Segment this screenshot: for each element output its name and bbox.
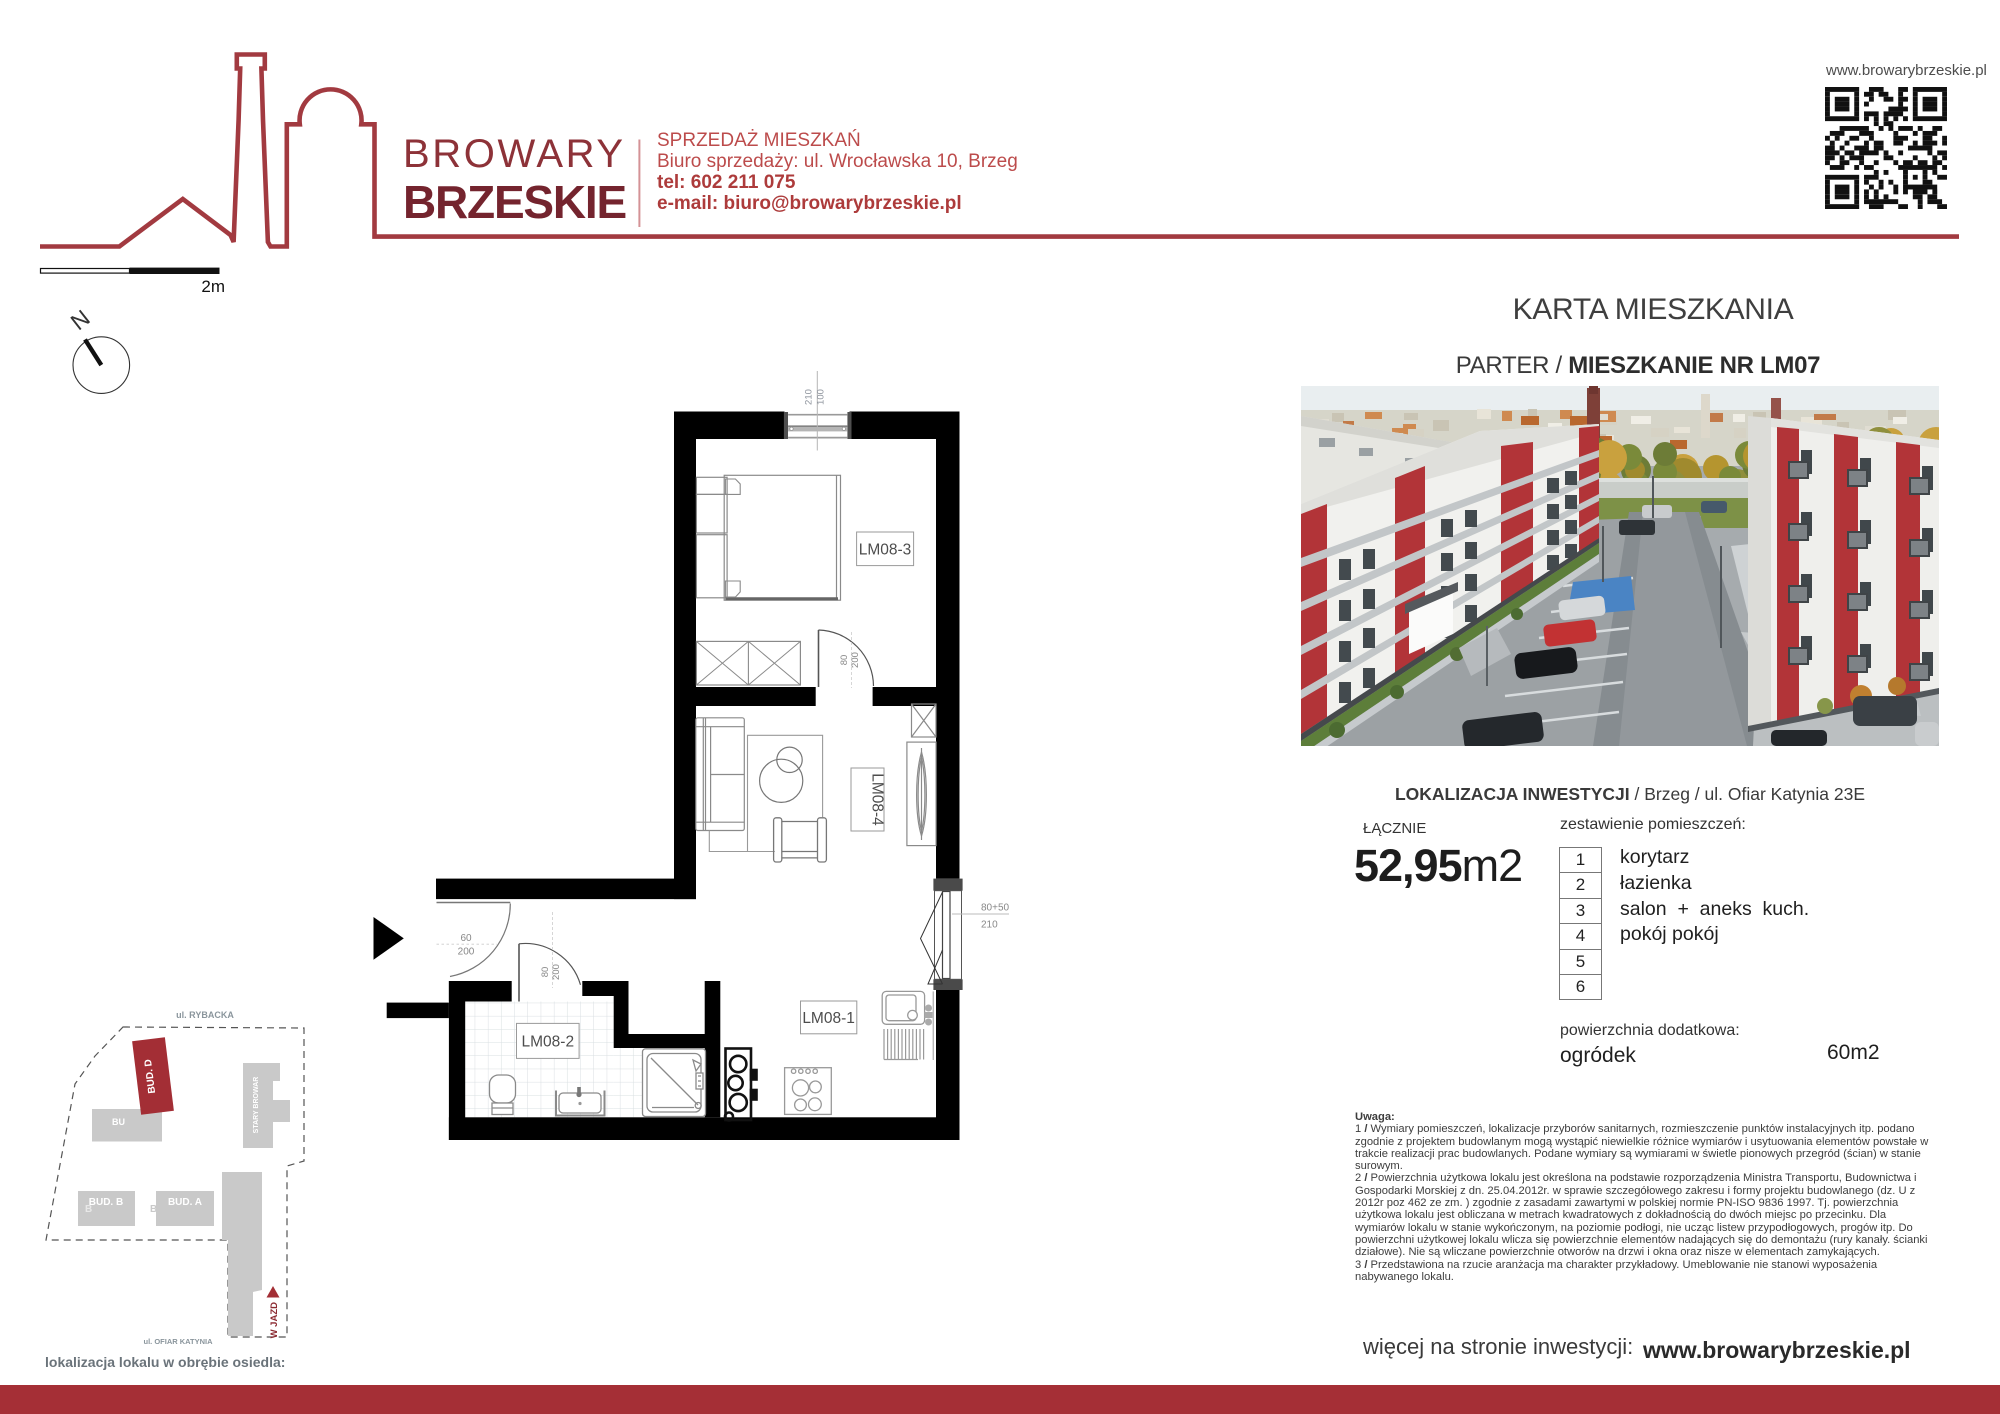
svg-text:BU: BU — [112, 1117, 125, 1127]
svg-text:80: 80 — [839, 655, 850, 666]
svg-text:BUD. B: BUD. B — [89, 1197, 123, 1208]
svg-text:200: 200 — [551, 964, 562, 980]
svg-text:B A: B A — [150, 1204, 167, 1215]
svg-text:200: 200 — [850, 652, 861, 668]
svg-text:210: 210 — [981, 920, 998, 931]
svg-text:W JAZD: W JAZD — [269, 1302, 280, 1339]
svg-text:LM08-4: LM08-4 — [869, 773, 886, 826]
svg-text:B: B — [85, 1204, 92, 1215]
svg-text:60: 60 — [460, 933, 472, 944]
svg-text:ul. OFIAR KATYNIA: ul. OFIAR KATYNIA — [143, 1337, 213, 1346]
svg-text:N: N — [66, 304, 95, 335]
svg-text:STARY BROWAR: STARY BROWAR — [253, 1077, 260, 1134]
svg-text:LM08-3: LM08-3 — [859, 542, 912, 559]
svg-text:200: 200 — [458, 947, 475, 958]
svg-text:80: 80 — [540, 967, 551, 978]
svg-text:210: 210 — [804, 389, 815, 405]
svg-text:100: 100 — [816, 389, 827, 405]
svg-text:ul. RYBACKA: ul. RYBACKA — [176, 1010, 234, 1020]
svg-text:80+50: 80+50 — [981, 903, 1010, 914]
svg-text:BUD. A: BUD. A — [168, 1197, 202, 1208]
svg-text:LM08-2: LM08-2 — [522, 1034, 575, 1051]
svg-text:LM08-1: LM08-1 — [802, 1010, 855, 1027]
svg-text:2m: 2m — [201, 277, 225, 296]
